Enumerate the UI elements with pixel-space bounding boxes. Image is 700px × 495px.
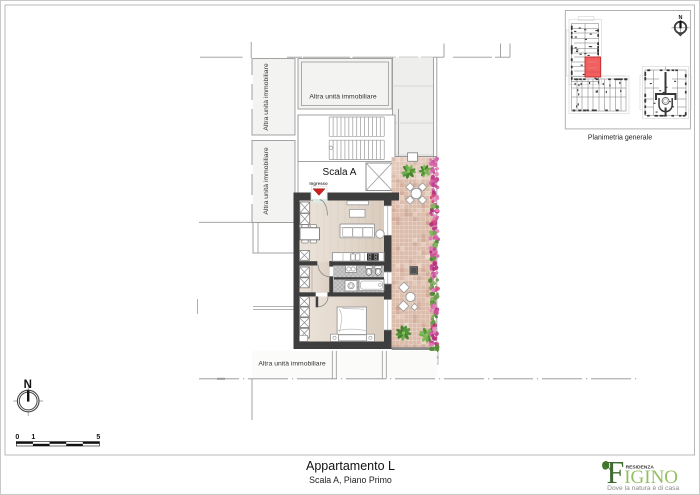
svg-text:Altra unità immobiliare: Altra unità immobiliare bbox=[258, 361, 325, 368]
svg-text:Dove la natura è di casa: Dove la natura è di casa bbox=[607, 485, 679, 492]
svg-text:Appartamento L: Appartamento L bbox=[306, 459, 395, 473]
svg-text:1: 1 bbox=[31, 434, 35, 441]
svg-text:0: 0 bbox=[15, 434, 19, 441]
svg-text:Altra unità immobiliare: Altra unità immobiliare bbox=[263, 63, 270, 130]
svg-text:N: N bbox=[24, 379, 32, 391]
svg-text:Scala A, Piano Primo: Scala A, Piano Primo bbox=[309, 475, 392, 485]
svg-text:Ingresso: Ingresso bbox=[309, 181, 328, 186]
svg-text:5: 5 bbox=[96, 434, 100, 441]
svg-text:Altra unità immobiliare: Altra unità immobiliare bbox=[309, 94, 376, 101]
svg-text:Altra unità immobiliare: Altra unità immobiliare bbox=[263, 147, 270, 214]
svg-text:Scala A: Scala A bbox=[323, 167, 357, 178]
svg-text:Planimetria generale: Planimetria generale bbox=[588, 134, 652, 141]
